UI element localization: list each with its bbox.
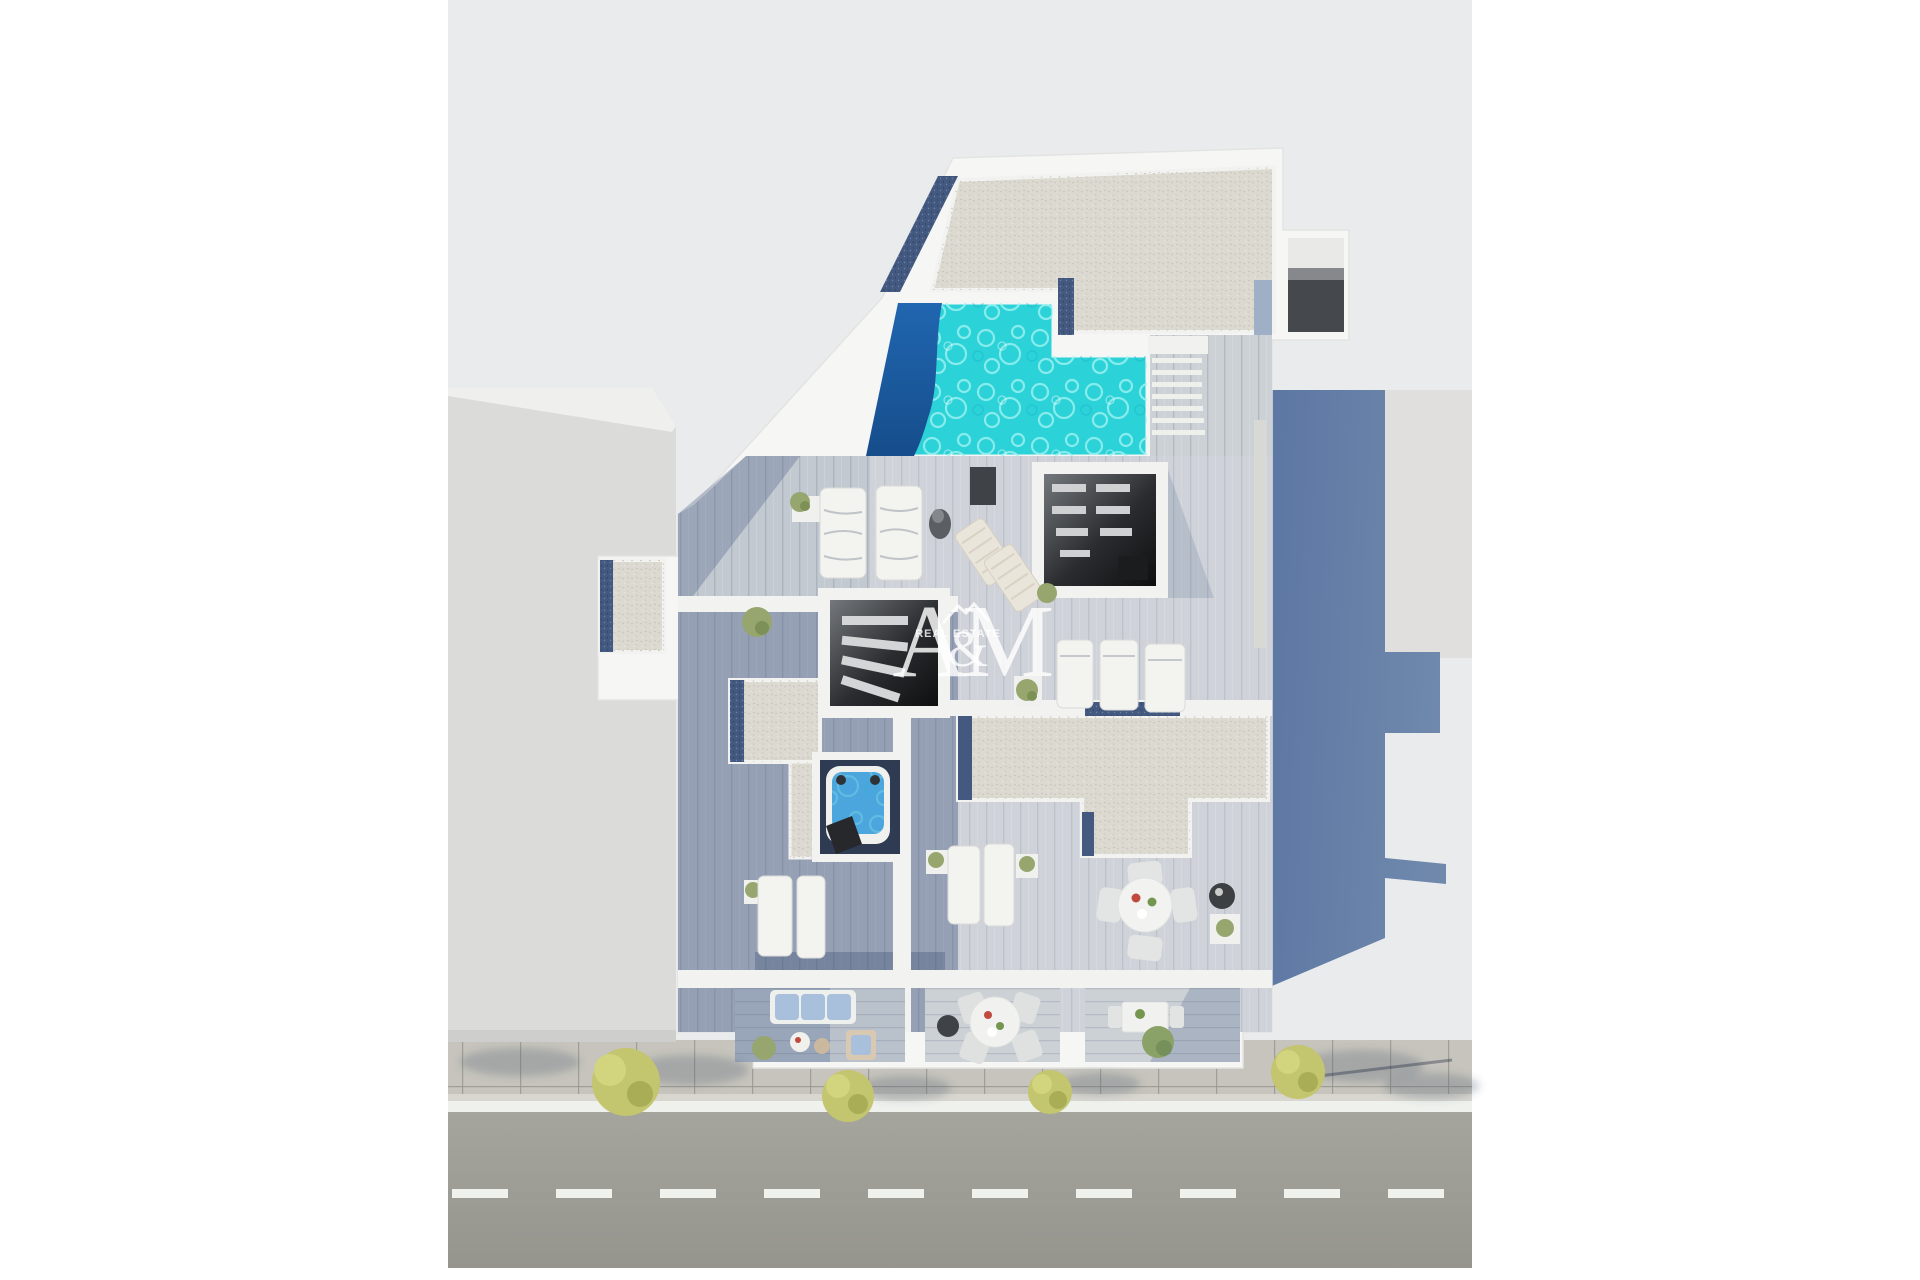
sun-lounger (797, 876, 825, 958)
sun-lounger (1057, 640, 1093, 708)
chair (1108, 1006, 1122, 1028)
bottom-terraces (735, 988, 1240, 1066)
potted-plant (928, 852, 944, 868)
sofa-cushion (801, 994, 825, 1020)
street-tree (1028, 1070, 1072, 1114)
stairwell-skylight-right (1032, 462, 1168, 598)
bottom-margin (448, 1268, 1472, 1280)
sun-lounger (948, 846, 980, 924)
hot-tub-room (812, 752, 908, 862)
deck-mat (970, 467, 996, 505)
neighbor-building-left (448, 388, 676, 1042)
sofa-cushion (827, 994, 851, 1020)
street-tree (592, 1048, 660, 1116)
planter-dark (937, 1015, 959, 1037)
potted-plant (1216, 919, 1234, 937)
table-item-red (1132, 894, 1141, 903)
wall-ledge (1254, 420, 1266, 648)
street-tree (822, 1070, 874, 1122)
sofa-cushion (775, 994, 799, 1020)
sun-lounger (1145, 644, 1185, 712)
stair-landing (1148, 336, 1208, 354)
street-tree (1271, 1045, 1325, 1099)
coffee-table (814, 1038, 830, 1054)
watermark: REAL ESTATE A & M (892, 584, 1054, 699)
dining-table-round (970, 997, 1020, 1047)
roof-edge-shade (448, 1030, 676, 1042)
roof-wing (1288, 238, 1344, 332)
dining-table-round (1118, 878, 1172, 932)
hot-tub-seat (836, 775, 846, 785)
potted-plant (752, 1036, 776, 1060)
sun-lounger (1100, 640, 1138, 710)
sun-lounger (984, 844, 1014, 926)
chair (1170, 1006, 1184, 1028)
sun-lounger (758, 876, 792, 956)
balcony-slab (1254, 280, 1272, 335)
render-canvas: REAL ESTATE A & M (0, 0, 1920, 1280)
watermark-letter-m: M (962, 584, 1054, 699)
pool-stairs (1148, 335, 1272, 460)
aerial-render: REAL ESTATE A & M (0, 0, 1920, 1280)
neighbor-building-right (1385, 390, 1472, 658)
table-item-green (1148, 898, 1157, 907)
hot-tub-seat (870, 775, 880, 785)
planter-dark (1209, 883, 1235, 909)
potted-plant (1019, 856, 1035, 872)
